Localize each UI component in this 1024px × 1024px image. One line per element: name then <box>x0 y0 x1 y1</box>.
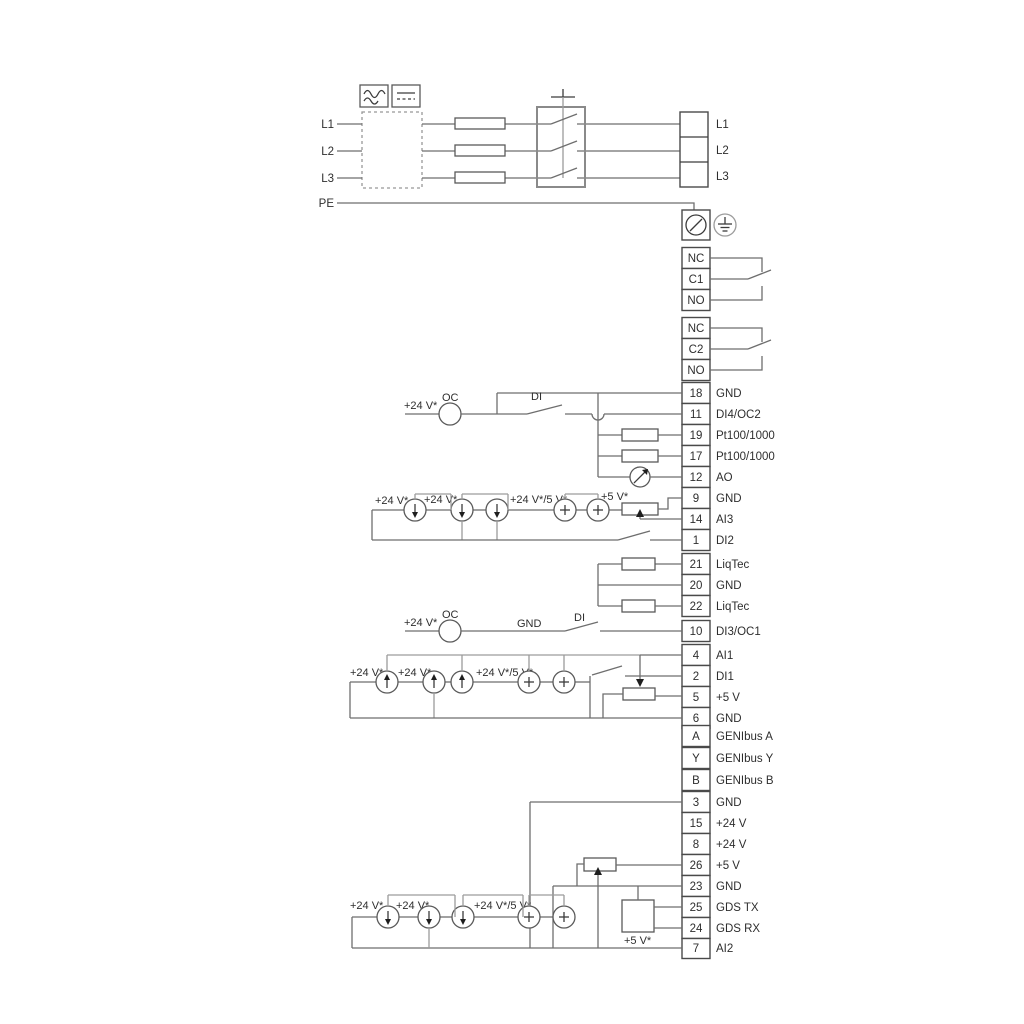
oc-label-di4: OC <box>442 392 459 404</box>
wiper-arrow <box>636 679 644 687</box>
open-collector-icon-di4 <box>439 403 461 425</box>
current-source-icon <box>418 906 440 928</box>
ai3-sensor-group: +24 V* +24 V* +24 V*/5 V* +5 V* <box>372 491 682 540</box>
voltage-source-icon <box>554 499 576 521</box>
di-label-di4: DI <box>531 391 542 403</box>
terminal-strip-c: 10 4 2 5 6 A Y B DI3/OC1 AI1 DI1 +5 V GN… <box>682 621 774 791</box>
ai2-potentiometer <box>584 858 616 871</box>
terminal-18: 18 <box>690 388 703 400</box>
mains-input-section: L1 L2 L3 PE <box>319 85 736 240</box>
fuse-l2 <box>455 145 505 156</box>
terminal-17-label: Pt100/1000 <box>716 451 775 463</box>
terminal-11: 11 <box>690 409 702 421</box>
analog-output-meter-icon <box>630 467 650 487</box>
terminal-6-label: GND <box>716 713 742 725</box>
mains-in-l2-label: L2 <box>321 146 334 158</box>
mains-out-l3-label: L3 <box>716 171 729 183</box>
phase-wires <box>337 124 680 178</box>
terminal-20-label: GND <box>716 580 742 592</box>
terminal-23-label: GND <box>716 881 742 893</box>
terminal-26-label: +5 V <box>716 860 740 872</box>
terminal-15-label: +24 V <box>716 818 747 830</box>
current-source-icon <box>404 499 426 521</box>
terminal-22: 22 <box>690 601 703 613</box>
di1-switch <box>592 666 622 675</box>
relay1-nc: NC <box>688 253 705 265</box>
liqtec-sensors <box>598 558 682 612</box>
mains-output-block: L1 L2 L3 <box>680 112 729 187</box>
terminal-genibus-y: Y <box>692 753 700 765</box>
terminal-26: 26 <box>690 860 703 872</box>
terminal-genibus-b-label: GENIbus B <box>716 775 774 787</box>
plus5v-label-gds: +5 V* <box>624 935 652 947</box>
terminal-11-label: DI4/OC2 <box>716 409 761 421</box>
mains-in-l1-label: L1 <box>321 119 334 131</box>
terminal-14-label: AI3 <box>716 514 733 526</box>
dc-symbol-box <box>392 85 420 107</box>
ai1-sensor-group: +24 V* +24 V* +24 V*/5 V* <box>350 655 682 718</box>
terminal-8: 8 <box>693 839 699 851</box>
terminal-strip-a: 18 11 19 17 12 9 14 1 GND DI4/OC2 Pt100/… <box>682 383 775 551</box>
liqtec-sensor-1 <box>622 558 655 570</box>
relay2-c: C2 <box>689 344 704 356</box>
relay2-block: NC C2 NO <box>682 318 771 381</box>
fuse-l1 <box>455 118 505 129</box>
terminal-12: 12 <box>690 472 703 484</box>
strip-a-wiring: +24 V* OC DI <box>404 391 682 487</box>
terminal-25-label: GDS TX <box>716 902 759 914</box>
terminal-20: 20 <box>690 580 703 592</box>
voltage-source-icon <box>587 499 609 521</box>
relay1-no: NO <box>687 295 704 307</box>
liqtec-sensor-2 <box>622 600 655 612</box>
terminal-strip-liqtec: 21 20 22 LiqTec GND LiqTec <box>598 554 749 617</box>
current-source-icon <box>376 671 398 693</box>
wiring-diagram: L1 L2 L3 PE <box>0 0 1024 1024</box>
plus24v-label-ai3-1: +24 V* <box>375 495 409 507</box>
bottom-section-wiring: +5 V* <box>352 802 682 948</box>
current-source-icon <box>451 671 473 693</box>
terminal-genibus-b: B <box>692 775 700 787</box>
terminal-15: 15 <box>690 818 703 830</box>
ai1-potentiometer <box>623 688 655 700</box>
terminal-5: 5 <box>693 692 699 704</box>
terminal-10: 10 <box>690 626 703 638</box>
ac-symbol-box <box>360 85 388 107</box>
terminal-1-label: DI2 <box>716 535 734 547</box>
terminal-3: 3 <box>693 797 699 809</box>
current-source-icon <box>377 906 399 928</box>
plus24v-label-di4: +24 V* <box>404 400 438 412</box>
terminal-19: 19 <box>690 430 703 442</box>
relay1-c: C1 <box>689 274 704 286</box>
mains-in-l3-label: L3 <box>321 173 334 185</box>
earth-ground-icon <box>714 214 736 236</box>
terminal-genibus-y-label: GENIbus Y <box>716 753 774 765</box>
mains-in-pe-label: PE <box>319 198 335 210</box>
terminal-10-label: DI3/OC1 <box>716 626 761 638</box>
relay1-block: NC C1 NO <box>682 248 771 311</box>
terminal-9-label: GND <box>716 493 742 505</box>
emc-filter-box <box>362 112 422 188</box>
main-disconnect-switch <box>537 89 585 187</box>
fuses <box>455 118 505 183</box>
di3-oc1-wiring: +24 V* OC GND DI <box>404 609 682 642</box>
di2-switch <box>618 531 650 540</box>
terminal-2-label: DI1 <box>716 671 734 683</box>
terminal-24-label: GDS RX <box>716 923 760 935</box>
relay1-contact <box>710 258 771 300</box>
relay2-contact <box>710 328 771 370</box>
terminal-17: 17 <box>690 451 703 463</box>
ai2-sensor-group: +24 V* +24 V* +24 V*/5 V* <box>350 895 575 948</box>
voltage-source-icon <box>553 906 575 928</box>
voltage-source-icon <box>553 671 575 693</box>
terminal-14: 14 <box>690 514 703 526</box>
mains-out-l1-label: L1 <box>716 119 729 131</box>
current-source-icon <box>486 499 508 521</box>
voltage-source-icon <box>518 906 540 928</box>
terminal-3-label: GND <box>716 797 742 809</box>
gds-sensor-box <box>622 900 654 932</box>
terminal-22-label: LiqTec <box>716 601 749 613</box>
terminal-19-label: Pt100/1000 <box>716 430 775 442</box>
di4-switch <box>527 405 562 414</box>
terminal-2: 2 <box>693 671 699 683</box>
di-label-di3: DI <box>574 612 585 624</box>
terminal-12-label: AO <box>716 472 733 484</box>
terminal-7-label: AI2 <box>716 943 733 955</box>
terminal-strip-d: 3 15 8 26 23 25 24 7 GND +24 V +24 V +5 … <box>682 792 760 959</box>
current-source-icon <box>423 671 445 693</box>
relay2-nc: NC <box>688 323 705 335</box>
terminal-1: 1 <box>693 535 699 547</box>
relay2-no: NO <box>687 365 704 377</box>
voltage-source-icon <box>518 671 540 693</box>
terminal-4-label: AI1 <box>716 650 733 662</box>
oc-label-di3: OC <box>442 609 459 621</box>
open-collector-icon-di3 <box>439 620 461 642</box>
gnd-label-di3: GND <box>517 618 542 630</box>
terminal-4: 4 <box>693 650 700 662</box>
terminal-24: 24 <box>690 923 703 935</box>
pt100-sensor-2 <box>622 450 658 462</box>
terminal-genibus-a-label: GENIbus A <box>716 731 773 743</box>
terminal-genibus-a: A <box>692 731 700 743</box>
terminal-18-label: GND <box>716 388 742 400</box>
terminal-6: 6 <box>693 713 699 725</box>
terminal-9: 9 <box>693 493 699 505</box>
fuse-l3 <box>455 172 505 183</box>
terminal-5-label: +5 V <box>716 692 740 704</box>
terminal-7: 7 <box>693 943 699 955</box>
terminal-25: 25 <box>690 902 703 914</box>
current-source-icon <box>451 499 473 521</box>
pt100-sensor-1 <box>622 429 658 441</box>
terminal-23: 23 <box>690 881 703 893</box>
terminal-21: 21 <box>690 559 703 571</box>
plus24v-label-di3: +24 V* <box>404 617 438 629</box>
pe-earth <box>337 203 736 240</box>
terminal-8-label: +24 V <box>716 839 747 851</box>
mains-out-l2-label: L2 <box>716 145 729 157</box>
terminal-21-label: LiqTec <box>716 559 749 571</box>
